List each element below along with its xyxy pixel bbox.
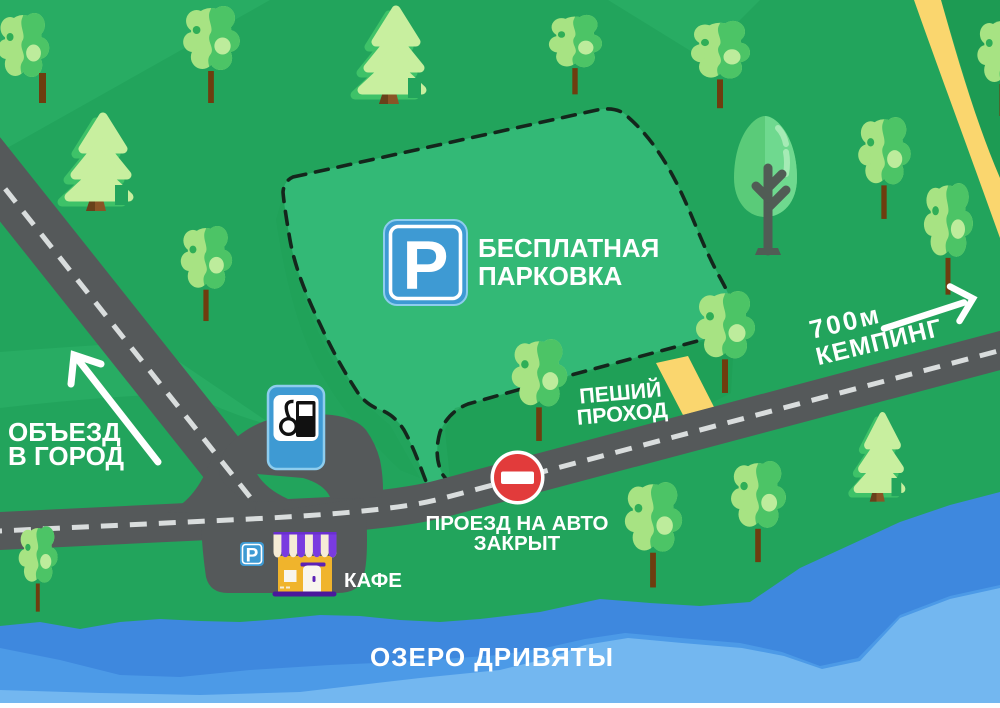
svg-text:БЕСПЛАТНАЯ: БЕСПЛАТНАЯ bbox=[478, 233, 659, 263]
svg-text:ОЗЕРО ДРИВЯТЫ: ОЗЕРО ДРИВЯТЫ bbox=[370, 642, 614, 672]
svg-text:P: P bbox=[402, 227, 448, 304]
svg-text:В ГОРОД: В ГОРОД bbox=[8, 441, 125, 471]
svg-text:КАФЕ: КАФЕ bbox=[344, 569, 402, 592]
svg-text:ЗАКРЫТ: ЗАКРЫТ bbox=[474, 532, 561, 555]
svg-text:ПАРКОВКА: ПАРКОВКА bbox=[478, 261, 623, 291]
svg-text:P: P bbox=[246, 546, 259, 567]
